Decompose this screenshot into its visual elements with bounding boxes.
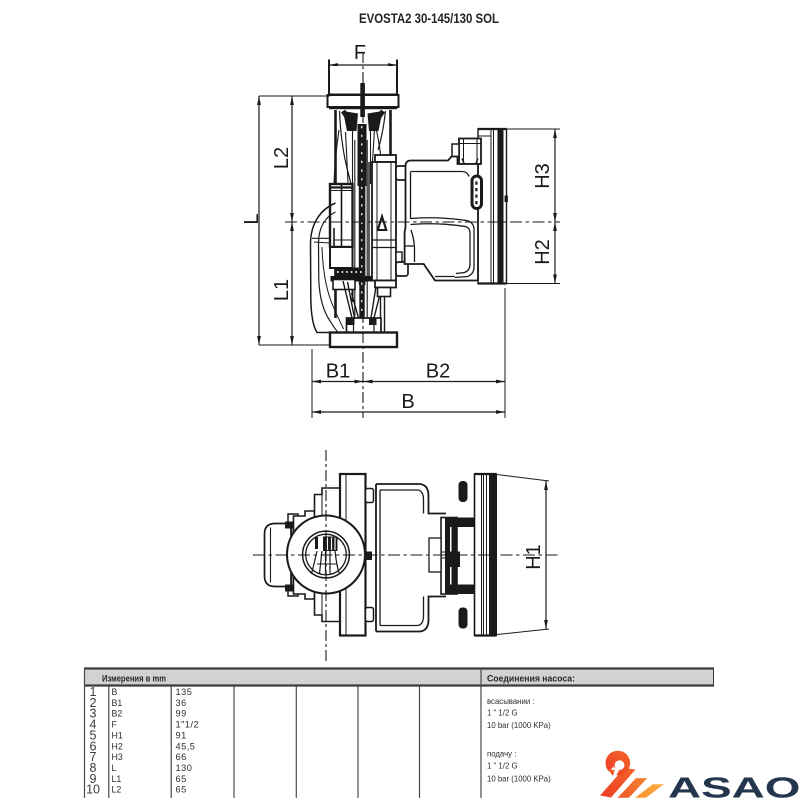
svg-text:H3: H3 [112,752,123,762]
svg-text:135: 135 [176,687,193,697]
svg-text:всасывании :: всасывании : [487,697,535,706]
svg-text:36: 36 [176,698,187,708]
svg-text:L: L [241,213,263,224]
svg-text:L2: L2 [271,147,293,169]
svg-text:ASAO: ASAO [668,772,800,800]
svg-text:45,5: 45,5 [176,741,196,751]
svg-text:10 bar (1000 KPa): 10 bar (1000 KPa) [487,721,551,730]
svg-text:H3: H3 [532,163,554,189]
svg-text:B: B [401,391,414,413]
svg-text:99: 99 [176,709,187,719]
svg-text:91: 91 [176,730,187,740]
svg-text:H2: H2 [532,239,554,265]
svg-text:B2: B2 [426,361,450,383]
svg-text:F: F [112,720,118,730]
svg-text:подачу :: подачу : [487,750,516,759]
svg-text:B2: B2 [112,709,123,719]
svg-text:65: 65 [176,785,187,795]
svg-text:H1: H1 [523,544,545,570]
svg-text:L2: L2 [112,785,122,795]
svg-text:H2: H2 [112,741,123,751]
svg-text:1 " 1/2 G: 1 " 1/2 G [487,709,518,718]
svg-text:65: 65 [176,774,187,784]
svg-text:H1: H1 [112,730,123,740]
svg-text:Соединения насоса:: Соединения насоса: [487,674,575,684]
svg-text:Измерения в mm: Измерения в mm [102,674,166,684]
svg-text:B: B [112,687,118,697]
svg-text:L: L [112,763,117,773]
svg-text:130: 130 [176,763,193,773]
svg-text:B1: B1 [112,698,123,708]
svg-text:L1: L1 [271,279,293,301]
svg-text:EVOSTA2 30-145/130 SOL: EVOSTA2 30-145/130 SOL [359,11,499,27]
svg-text:10: 10 [86,783,100,797]
svg-text:L1: L1 [112,774,122,784]
svg-text:66: 66 [176,752,187,762]
svg-text:1 " 1/2 G: 1 " 1/2 G [487,762,518,771]
svg-text:B1: B1 [326,361,350,383]
svg-text:10 bar (1000 KPa): 10 bar (1000 KPa) [487,775,551,784]
svg-text:F: F [354,42,366,64]
svg-text:1"1/2: 1"1/2 [176,720,200,730]
